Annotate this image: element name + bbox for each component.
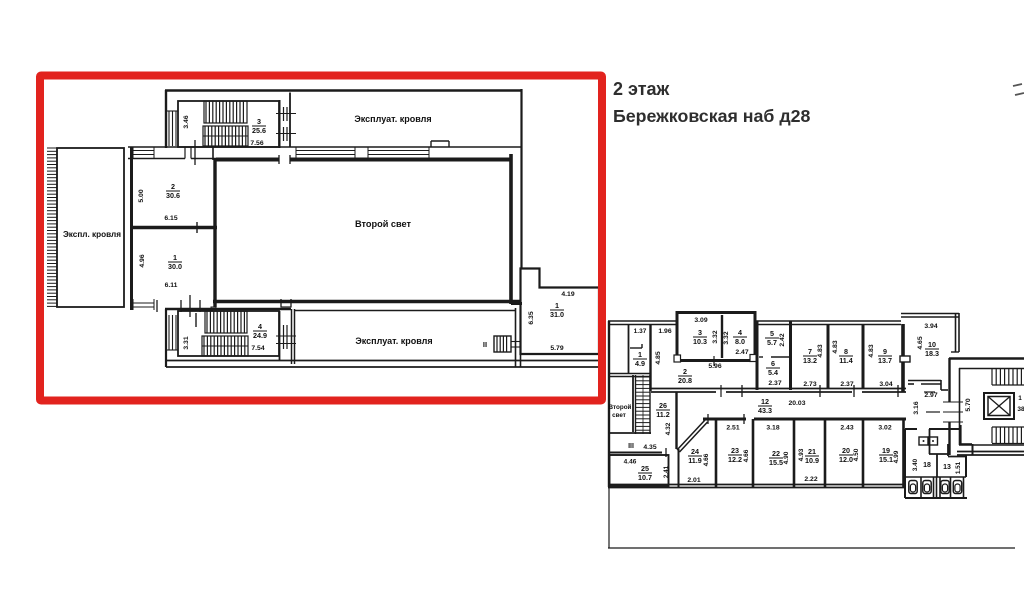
svg-text:4.90: 4.90 <box>783 451 790 464</box>
svg-text:2.51: 2.51 <box>726 425 739 432</box>
svg-text:II: II <box>483 340 487 349</box>
svg-text:4.66: 4.66 <box>743 449 750 462</box>
svg-text:2 этаж: 2 этаж <box>613 79 670 99</box>
svg-text:9: 9 <box>883 347 887 356</box>
svg-text:4.46: 4.46 <box>624 459 637 466</box>
svg-text:12.2: 12.2 <box>728 455 742 464</box>
svg-text:1.96: 1.96 <box>658 328 671 335</box>
svg-text:3.02: 3.02 <box>878 425 891 432</box>
svg-text:10.9: 10.9 <box>805 456 819 465</box>
svg-text:2.42: 2.42 <box>779 333 786 346</box>
svg-text:7: 7 <box>808 347 812 356</box>
svg-text:4.85: 4.85 <box>655 351 662 364</box>
svg-text:4.35: 4.35 <box>643 444 656 451</box>
svg-text:1.37: 1.37 <box>634 328 647 335</box>
svg-text:3.31: 3.31 <box>183 336 190 349</box>
svg-text:30.0: 30.0 <box>168 262 182 271</box>
svg-text:6.15: 6.15 <box>164 215 177 222</box>
svg-text:8: 8 <box>844 347 848 356</box>
svg-text:23: 23 <box>731 446 739 455</box>
svg-text:2: 2 <box>683 367 687 376</box>
svg-text:11.4: 11.4 <box>839 356 853 365</box>
svg-text:3.16: 3.16 <box>913 401 920 414</box>
svg-text:1: 1 <box>173 253 177 262</box>
svg-text:4.99: 4.99 <box>893 450 900 463</box>
svg-text:3.04: 3.04 <box>879 381 892 388</box>
svg-text:19: 19 <box>882 446 890 455</box>
svg-text:10.3: 10.3 <box>693 337 707 346</box>
svg-text:2.73: 2.73 <box>803 381 816 388</box>
svg-text:7.56: 7.56 <box>250 140 263 147</box>
svg-text:20.8: 20.8 <box>678 376 692 385</box>
svg-text:3: 3 <box>698 328 702 337</box>
svg-text:11.9: 11.9 <box>688 456 702 465</box>
svg-text:43.3: 43.3 <box>758 406 772 415</box>
svg-text:12: 12 <box>761 397 769 406</box>
svg-text:5: 5 <box>770 329 774 338</box>
svg-text:2.22: 2.22 <box>804 476 817 483</box>
svg-text:4.83: 4.83 <box>817 344 824 357</box>
svg-text:2: 2 <box>171 182 175 191</box>
svg-text:18: 18 <box>923 462 931 469</box>
svg-text:5.4: 5.4 <box>768 368 778 377</box>
svg-text:5.00: 5.00 <box>138 189 145 202</box>
svg-text:5.79: 5.79 <box>550 345 563 352</box>
svg-text:5.70: 5.70 <box>965 398 972 411</box>
svg-text:26: 26 <box>659 401 667 410</box>
svg-text:3: 3 <box>257 117 261 126</box>
svg-text:4.65: 4.65 <box>917 336 924 349</box>
svg-text:свет: свет <box>612 412 626 419</box>
svg-text:10: 10 <box>928 340 936 349</box>
svg-text:5.96: 5.96 <box>708 363 721 370</box>
svg-text:4.93: 4.93 <box>798 448 805 461</box>
svg-text:13.7: 13.7 <box>878 356 892 365</box>
svg-text:2.37: 2.37 <box>840 381 853 388</box>
svg-text:20.03: 20.03 <box>788 400 805 407</box>
svg-text:2.43: 2.43 <box>840 425 853 432</box>
svg-text:1: 1 <box>555 301 559 310</box>
svg-text:8.0: 8.0 <box>735 337 745 346</box>
svg-text:1.51: 1.51 <box>955 461 962 474</box>
svg-text:31.0: 31.0 <box>550 310 564 319</box>
svg-text:3.18: 3.18 <box>766 425 779 432</box>
svg-text:18.3: 18.3 <box>925 349 939 358</box>
svg-text:3.32: 3.32 <box>723 331 730 344</box>
svg-text:12.0: 12.0 <box>839 455 853 464</box>
svg-text:1: 1 <box>638 350 642 359</box>
svg-text:3.40: 3.40 <box>912 458 919 471</box>
svg-text:30.6: 30.6 <box>166 191 180 200</box>
svg-text:10.7: 10.7 <box>638 473 652 482</box>
svg-text:3.94: 3.94 <box>924 323 937 330</box>
svg-text:Второй свет: Второй свет <box>355 219 412 229</box>
svg-text:III: III <box>628 443 634 450</box>
svg-text:4.19: 4.19 <box>561 291 574 298</box>
svg-text:4.83: 4.83 <box>868 344 875 357</box>
svg-text:2.01: 2.01 <box>687 477 700 484</box>
svg-text:38: 38 <box>1017 406 1024 413</box>
svg-text:Эксплуат. кровля: Эксплуат. кровля <box>355 336 432 346</box>
svg-text:4.50: 4.50 <box>853 448 860 461</box>
svg-text:3.46: 3.46 <box>183 115 190 128</box>
svg-text:4.9: 4.9 <box>635 359 645 368</box>
svg-text:3.09: 3.09 <box>694 317 707 324</box>
svg-text:20: 20 <box>842 446 850 455</box>
svg-text:Второй: Второй <box>609 403 632 411</box>
svg-text:22: 22 <box>772 449 780 458</box>
svg-text:6.35: 6.35 <box>528 311 535 324</box>
svg-text:11.2: 11.2 <box>656 410 670 419</box>
svg-text:1: 1 <box>1018 395 1022 402</box>
svg-text:24.9: 24.9 <box>253 331 267 340</box>
svg-text:25.6: 25.6 <box>252 126 266 135</box>
svg-text:Эксплуат. кровля: Эксплуат. кровля <box>354 114 431 124</box>
svg-text:4.83: 4.83 <box>832 340 839 353</box>
svg-text:24: 24 <box>691 447 699 456</box>
svg-text:6.11: 6.11 <box>165 282 178 289</box>
svg-text:15.1: 15.1 <box>879 455 893 464</box>
svg-text:15.5: 15.5 <box>769 458 783 467</box>
svg-text:4.66: 4.66 <box>703 453 710 466</box>
svg-text:2.41: 2.41 <box>663 465 670 478</box>
svg-text:2.47: 2.47 <box>735 349 748 356</box>
svg-text:2.97: 2.97 <box>924 392 937 399</box>
svg-text:4.96: 4.96 <box>139 254 146 267</box>
svg-text:4: 4 <box>738 328 742 337</box>
svg-text:2.37: 2.37 <box>768 380 781 387</box>
svg-text:13.2: 13.2 <box>803 356 817 365</box>
svg-text:4: 4 <box>258 322 262 331</box>
svg-text:3.32: 3.32 <box>712 330 719 343</box>
svg-text:13: 13 <box>943 464 951 471</box>
svg-text:4.32: 4.32 <box>665 422 672 435</box>
svg-text:7.54: 7.54 <box>251 345 264 352</box>
svg-text:21: 21 <box>808 447 816 456</box>
svg-text:Бережковская наб д28: Бережковская наб д28 <box>613 106 811 126</box>
svg-text:5.7: 5.7 <box>767 338 777 347</box>
svg-text:6: 6 <box>771 359 775 368</box>
svg-text:25: 25 <box>641 464 649 473</box>
svg-text:Экспл. кровля: Экспл. кровля <box>63 230 121 239</box>
